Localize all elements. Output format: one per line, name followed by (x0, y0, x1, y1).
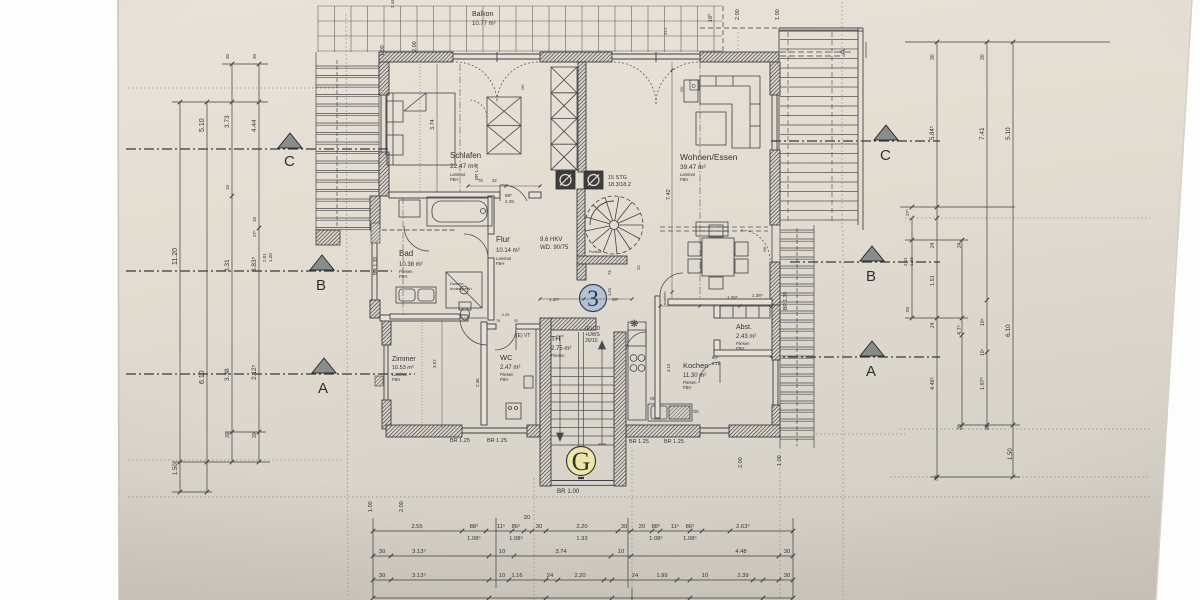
svg-text:11.30 m²: 11.30 m² (683, 373, 706, 379)
svg-text:98⁵: 98⁵ (612, 297, 619, 302)
svg-text:30: 30 (225, 53, 230, 59)
svg-text:3.13⁵: 3.13⁵ (412, 572, 426, 579)
svg-text:1.08⁵: 1.08⁵ (509, 535, 523, 542)
svg-text:1.08⁵: 1.08⁵ (649, 535, 663, 542)
svg-text:50: 50 (905, 306, 910, 312)
svg-text:30: 30 (536, 524, 542, 530)
svg-text:2.00: 2.00 (738, 457, 744, 468)
svg-text:30: 30 (784, 549, 790, 555)
svg-text:24: 24 (632, 573, 639, 579)
svg-text:2.36: 2.36 (475, 378, 480, 387)
svg-text:A: A (866, 363, 876, 380)
svg-text:3.38: 3.38 (224, 368, 231, 381)
svg-text:G: G (572, 447, 591, 476)
svg-text:3.73: 3.73 (224, 115, 231, 128)
svg-text:22.47 m²: 22.47 m² (450, 163, 476, 170)
svg-text:30: 30 (934, 475, 940, 481)
svg-text:OK: OK (693, 409, 699, 414)
svg-text:1.97⁵: 1.97⁵ (979, 377, 986, 390)
svg-text:2.18: 2.18 (712, 361, 721, 366)
svg-text:2.01: 2.01 (903, 257, 908, 266)
svg-text:Bad: Bad (399, 249, 413, 258)
svg-text:FBH: FBH (392, 377, 400, 382)
svg-text:2.00: 2.00 (399, 501, 405, 512)
svg-text:BR 1.00: BR 1.00 (557, 488, 580, 495)
svg-text:76: 76 (478, 178, 483, 183)
svg-text:3.74: 3.74 (555, 549, 567, 555)
svg-text:20: 20 (639, 524, 645, 530)
svg-text:B: B (316, 277, 326, 294)
svg-text:C: C (880, 147, 891, 164)
svg-text:7.42: 7.42 (666, 189, 672, 200)
svg-text:39.47 m²: 39.47 m² (680, 164, 706, 171)
svg-text:6.10: 6.10 (1005, 324, 1012, 337)
svg-text:30: 30 (980, 54, 986, 60)
svg-text:5.10: 5.10 (1005, 127, 1012, 140)
svg-text:Abst.: Abst. (736, 324, 752, 331)
svg-text:30: 30 (784, 573, 790, 579)
svg-text:27⁵: 27⁵ (905, 209, 910, 216)
svg-text:3: 3 (587, 286, 599, 311)
svg-text:BR 1.25: BR 1.25 (450, 438, 470, 444)
svg-text:TH: TH (551, 336, 560, 343)
svg-text:C: C (284, 153, 295, 170)
svg-text:1.08⁵: 1.08⁵ (467, 535, 481, 542)
svg-text:53.1: 53.1 (663, 26, 668, 35)
svg-text:2.75 m²: 2.75 m² (551, 346, 571, 352)
svg-text:FBH: FBH (680, 177, 688, 182)
svg-text:88⁵: 88⁵ (652, 523, 661, 530)
svg-text:10: 10 (618, 549, 624, 555)
svg-text:3.57: 3.57 (432, 359, 437, 368)
svg-text:2.00: 2.00 (412, 41, 418, 52)
svg-text:2.29: 2.29 (505, 199, 514, 204)
svg-text:2.01: 2.01 (262, 253, 267, 262)
svg-text:2.39: 2.39 (737, 573, 748, 579)
svg-text:2.00: 2.00 (735, 9, 741, 20)
svg-text:1.08⁵: 1.08⁵ (683, 535, 697, 542)
svg-text:2.20: 2.20 (576, 524, 587, 530)
svg-text:FBH: FBH (450, 177, 458, 182)
svg-text:32: 32 (492, 178, 497, 183)
svg-text:3.74: 3.74 (430, 119, 436, 130)
svg-text:30: 30 (225, 432, 231, 438)
svg-text:30: 30 (621, 524, 627, 530)
svg-text:(E) VT: (E) VT (516, 333, 530, 339)
svg-text:1.50: 1.50 (173, 463, 179, 475)
svg-text:18⁰: 18⁰ (707, 13, 714, 22)
svg-text:1.99: 1.99 (656, 573, 667, 579)
svg-text:20: 20 (524, 515, 530, 521)
svg-text:Wohnen/Essen: Wohnen/Essen (680, 152, 738, 162)
svg-text:❋: ❋ (630, 319, 638, 330)
svg-text:FBH: FBH (496, 261, 504, 266)
svg-text:10¹: 10¹ (980, 348, 986, 356)
svg-text:30: 30 (379, 549, 385, 555)
svg-text:2.55: 2.55 (411, 524, 422, 530)
svg-text:30: 30 (379, 573, 385, 579)
svg-text:bodengleich: bodengleich (450, 286, 472, 291)
svg-text:4.48: 4.48 (735, 549, 746, 555)
svg-text:BR 1.25: BR 1.25 (487, 438, 507, 444)
svg-text:Flur: Flur (496, 235, 510, 244)
svg-text:FBH: FBH (736, 346, 744, 351)
svg-text:2.12⁵: 2.12⁵ (251, 364, 258, 380)
svg-text:32: 32 (514, 319, 518, 323)
svg-text:1.50: 1.50 (1008, 448, 1014, 460)
svg-text:BR 1.39: BR 1.39 (783, 292, 789, 310)
svg-text:BR 1.25: BR 1.25 (664, 439, 684, 445)
svg-text:2.43 m²: 2.43 m² (736, 334, 756, 340)
svg-text:10: 10 (702, 573, 708, 579)
svg-text:74: 74 (607, 270, 612, 275)
svg-text:30: 30 (957, 424, 963, 430)
svg-text:1.26⁵: 1.26⁵ (727, 295, 738, 300)
svg-text:1.33: 1.33 (576, 536, 587, 542)
svg-text:WD. 90/75: WD. 90/75 (540, 245, 569, 251)
svg-text:1.00: 1.00 (380, 45, 386, 56)
svg-text:4.44: 4.44 (251, 119, 258, 132)
svg-text:3.13⁵: 3.13⁵ (412, 548, 426, 555)
svg-text:76: 76 (496, 319, 500, 323)
svg-text:88⁵: 88⁵ (470, 523, 479, 530)
svg-text:24: 24 (930, 242, 936, 248)
svg-text:10.53 m²: 10.53 m² (392, 365, 414, 371)
svg-text:6.10: 6.10 (199, 370, 206, 384)
svg-text:10: 10 (252, 216, 257, 222)
svg-text:A: A (318, 380, 328, 397)
svg-text:1.30⁵: 1.30⁵ (549, 297, 560, 302)
svg-text:Balkon: Balkon (472, 11, 494, 18)
svg-text:11⁵: 11⁵ (497, 523, 506, 530)
svg-text:20/10: 20/10 (585, 338, 598, 344)
svg-text:BR 1.25: BR 1.25 (629, 439, 649, 445)
svg-text:11.20: 11.20 (172, 248, 179, 265)
svg-text:15 STG: 15 STG (608, 175, 627, 181)
svg-text:2.29: 2.29 (502, 313, 509, 317)
svg-text:5.10: 5.10 (199, 118, 206, 132)
svg-text:D: D (692, 84, 696, 90)
svg-text:3.83⁵: 3.83⁵ (251, 256, 258, 272)
svg-text:5.84⁵: 5.84⁵ (929, 125, 936, 140)
svg-text:10⁸: 10⁸ (980, 318, 986, 326)
svg-text:10: 10 (225, 184, 230, 190)
svg-text:nutzlich: nutzlich (662, 291, 667, 305)
svg-text:1.01: 1.01 (607, 287, 612, 296)
svg-text:10.38 m²: 10.38 m² (399, 262, 423, 268)
svg-text:60⁵: 60⁵ (712, 355, 719, 360)
svg-text:1.28: 1.28 (909, 257, 914, 266)
svg-text:10.77 m²: 10.77 m² (472, 21, 496, 27)
svg-text:1.51: 1.51 (930, 275, 936, 286)
svg-text:24: 24 (957, 242, 963, 248)
svg-text:86⁵: 86⁵ (686, 523, 695, 530)
svg-text:4.46⁵: 4.46⁵ (929, 377, 936, 390)
svg-text:OK: OK (762, 246, 767, 252)
svg-text:24: 24 (636, 265, 641, 270)
svg-text:Podest: Podest (589, 250, 602, 254)
svg-text:24: 24 (930, 322, 936, 328)
svg-text:10.14 m²: 10.14 m² (496, 248, 520, 254)
svg-text:18.3/18.2: 18.3/18.2 (608, 182, 631, 188)
svg-text:1.38⁵: 1.38⁵ (752, 293, 763, 298)
svg-text:OK: OK (679, 86, 684, 92)
svg-text:1.28: 1.28 (268, 253, 273, 262)
svg-text:7.41: 7.41 (979, 127, 986, 140)
svg-text:10: 10 (499, 573, 505, 579)
svg-text:86⁵: 86⁵ (512, 523, 521, 530)
svg-text:30: 30 (252, 432, 258, 438)
svg-text:2.63⁵: 2.63⁵ (736, 523, 750, 530)
svg-text:27⁵: 27⁵ (252, 230, 257, 237)
svg-text:1.16: 1.16 (511, 573, 522, 579)
svg-text:1.00: 1.00 (777, 455, 783, 466)
svg-text:OK: OK (520, 84, 525, 90)
svg-text:10: 10 (499, 549, 505, 555)
svg-text:4.7⁵: 4.7⁵ (956, 325, 963, 335)
svg-text:88⁵: 88⁵ (505, 193, 512, 198)
svg-text:2.47 m²: 2.47 m² (500, 365, 520, 371)
svg-text:Zimmer: Zimmer (392, 356, 416, 363)
svg-text:1.00: 1.00 (775, 9, 781, 20)
svg-text:FBH: FBH (500, 377, 508, 382)
svg-text:11⁵: 11⁵ (671, 523, 680, 530)
svg-text:2.20: 2.20 (574, 573, 585, 579)
svg-text:30: 30 (930, 54, 936, 60)
svg-text:3.31: 3.31 (224, 259, 231, 272)
svg-text:9.6 HKV: 9.6 HKV (540, 237, 562, 243)
svg-text:WC: WC (500, 353, 513, 362)
svg-text:3.10: 3.10 (666, 363, 671, 372)
svg-text:B: B (866, 268, 876, 285)
svg-text:30: 30 (252, 53, 257, 59)
svg-text:30: 30 (985, 424, 991, 430)
svg-text:FBH: FBH (683, 385, 691, 390)
svg-text:Fliesen: Fliesen (551, 353, 565, 358)
svg-text:1.00: 1.00 (368, 501, 374, 512)
svg-text:2.44⁵: 2.44⁵ (390, 0, 395, 8)
svg-text:BR 1.39: BR 1.39 (373, 257, 379, 275)
svg-text:24: 24 (547, 573, 554, 579)
